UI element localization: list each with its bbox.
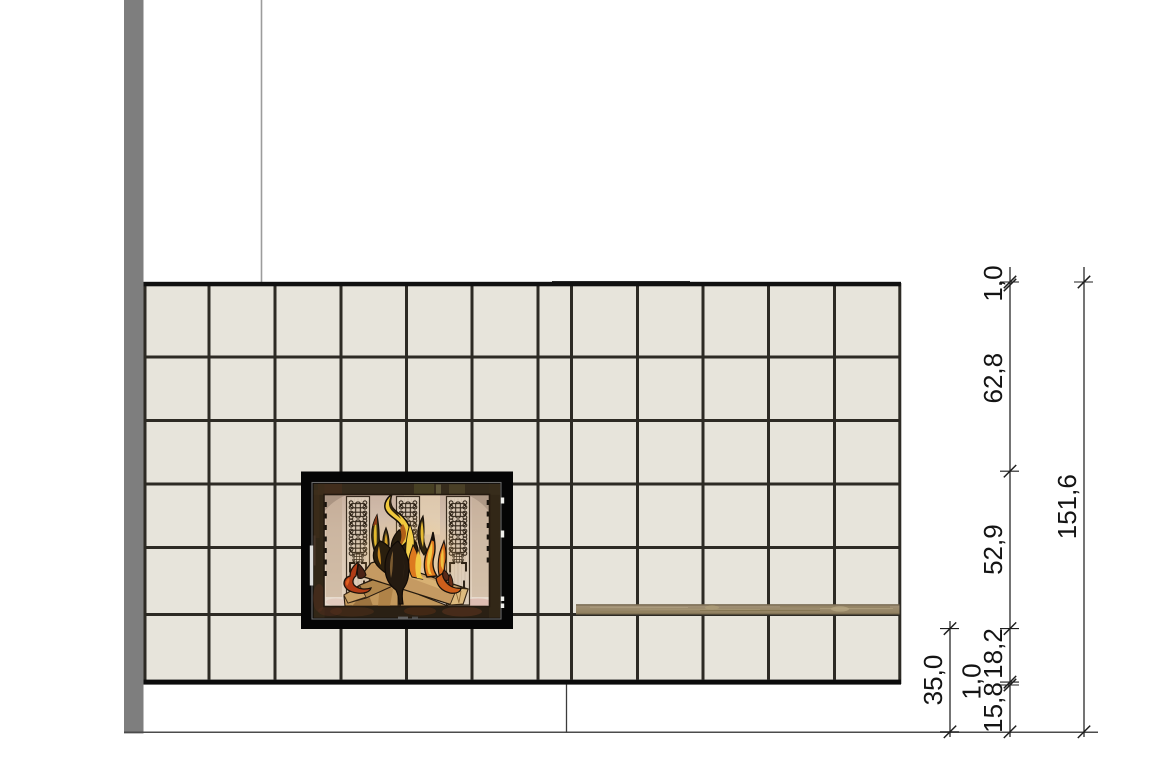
svg-text:1,0: 1,0	[978, 265, 1008, 301]
svg-text:52,9: 52,9	[978, 524, 1008, 575]
svg-text:151,6: 151,6	[1052, 474, 1082, 539]
svg-text:62,8: 62,8	[978, 353, 1008, 404]
svg-text:35,0: 35,0	[918, 655, 948, 706]
svg-text:15,8: 15,8	[978, 682, 1008, 733]
